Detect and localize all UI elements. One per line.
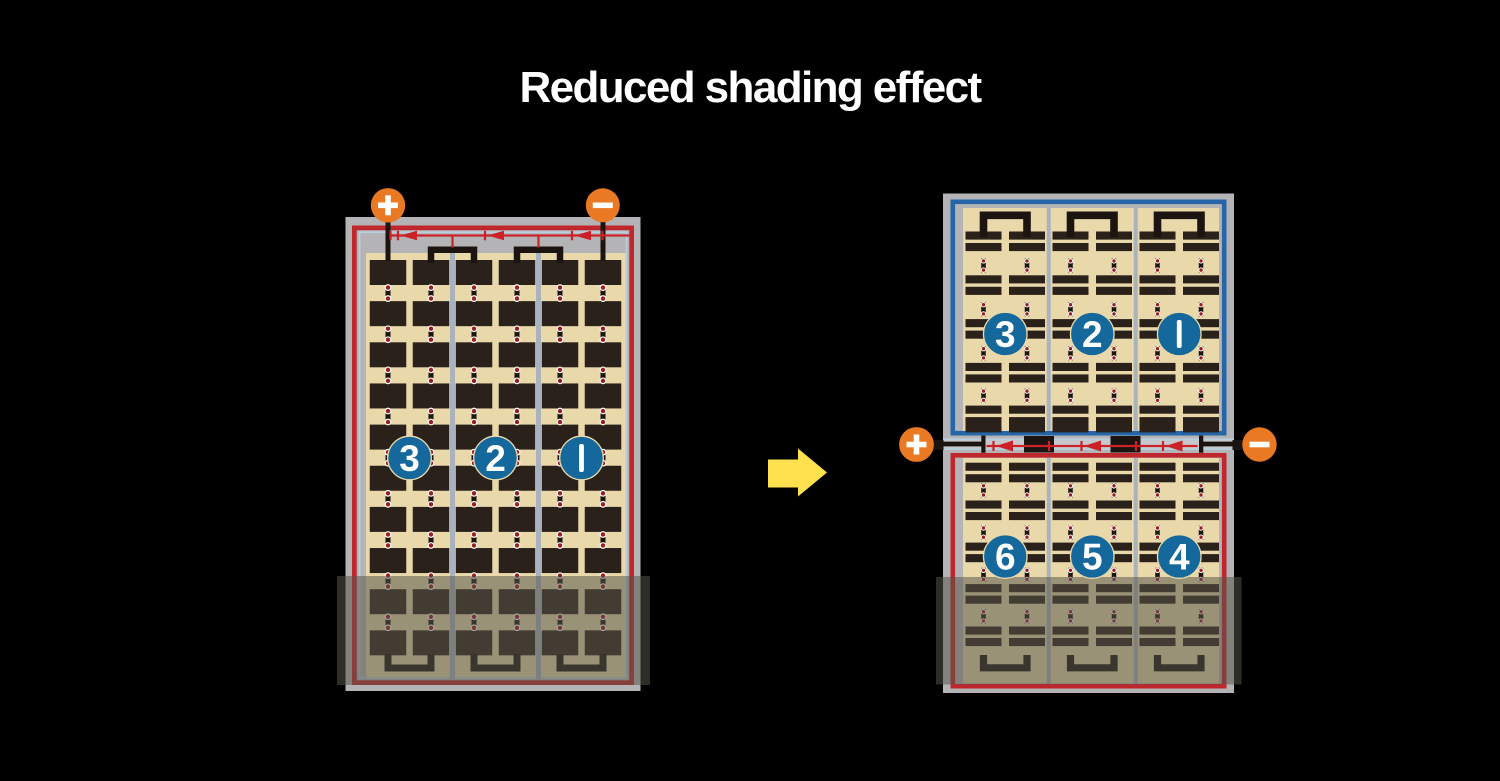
svg-text:3: 3 [995, 314, 1016, 355]
svg-text:5: 5 [1082, 537, 1103, 578]
svg-text:6: 6 [995, 537, 1016, 578]
svg-text:3: 3 [399, 438, 420, 479]
svg-text:2: 2 [1082, 314, 1103, 355]
svg-text:2: 2 [485, 438, 506, 479]
svg-text:4: 4 [1169, 537, 1190, 578]
